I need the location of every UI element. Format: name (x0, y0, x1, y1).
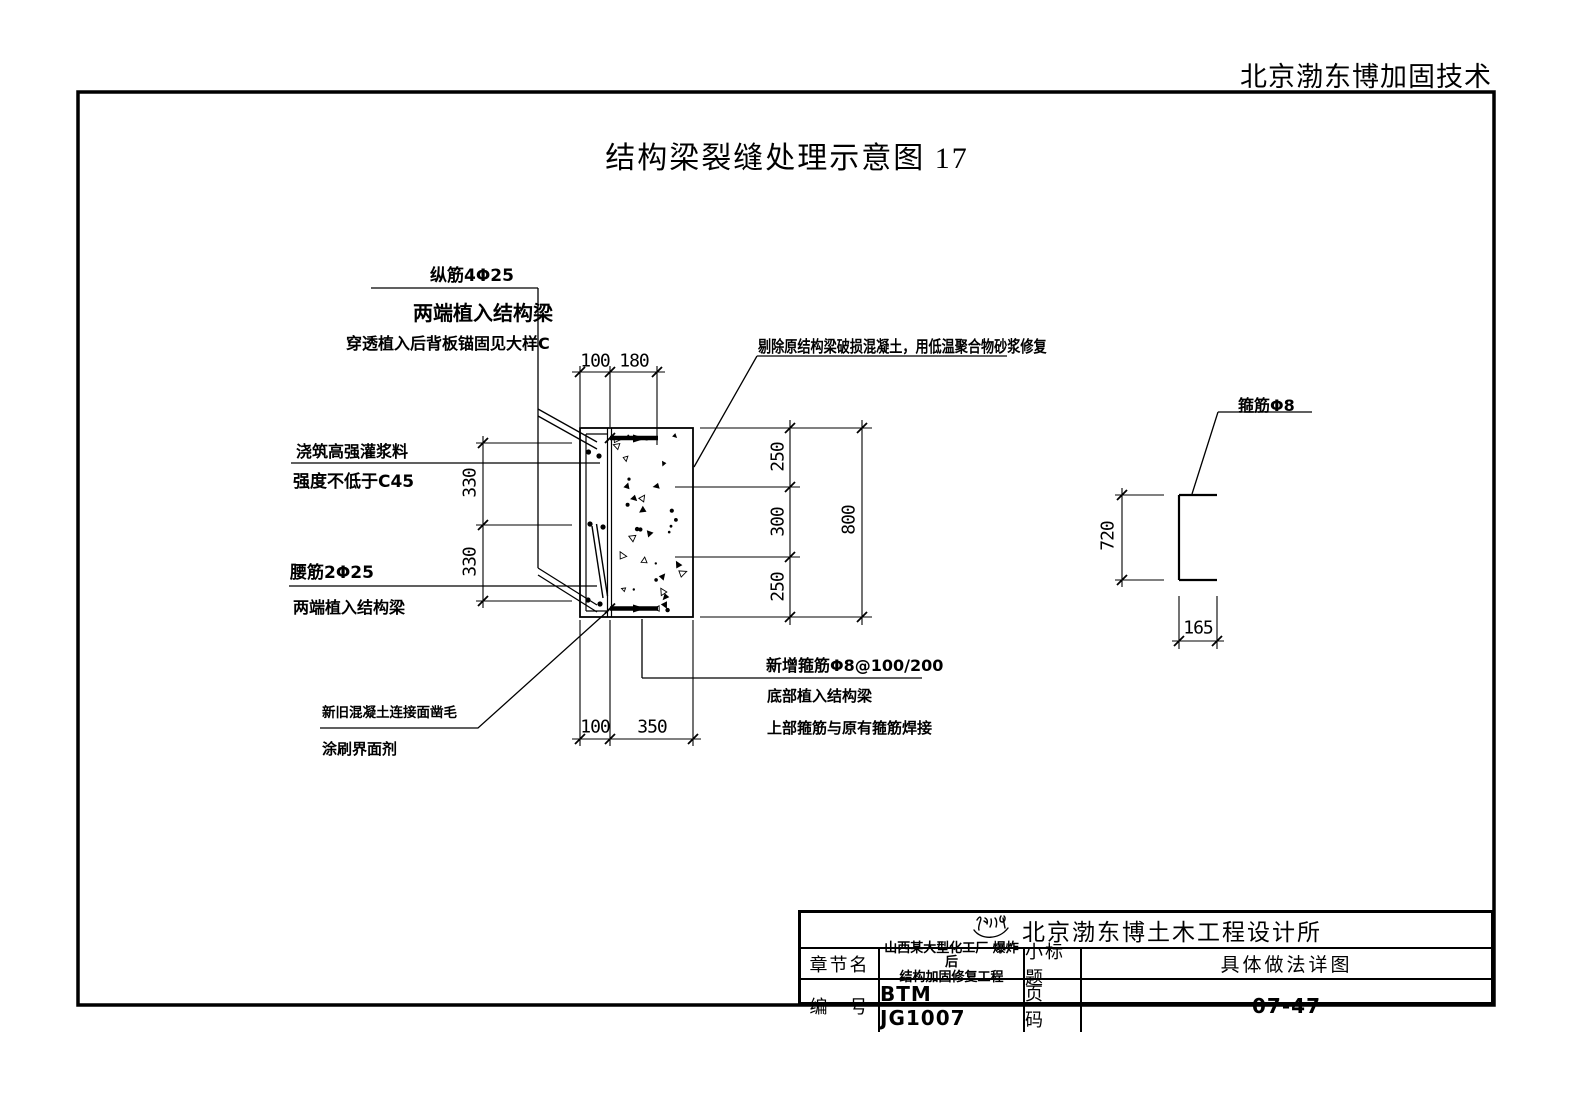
dim-detail-165: 165 (1183, 618, 1213, 639)
dim-detail-720: 720 (1098, 521, 1119, 551)
title-block: 北京渤东博土木工程设计所 章节名 山西某大型化工厂 爆炸后 结构加固修复工程 小… (798, 910, 1494, 1005)
title-block-grid: 章节名 山西某大型化工厂 爆炸后 结构加固修复工程 小标题 具体做法详图 编 号… (801, 949, 1491, 1032)
dim-right-800: 800 (839, 505, 860, 535)
sheet-border (78, 92, 1494, 1005)
annotation-stirrup-detail-label: 箍筋Φ8 (1238, 392, 1295, 416)
dim-bottom-350: 350 (637, 717, 667, 738)
annotation-longitudinal-rebar-note2: 穿透植入后背板锚固见大样C (346, 330, 550, 354)
dim-left-330a: 330 (460, 468, 481, 498)
stirrup-detail-shape (1179, 495, 1217, 580)
page-label: 页 码 (1023, 978, 1080, 1032)
dim-right-250a: 250 (768, 442, 789, 472)
annotation-longitudinal-rebar: 纵筋4Φ25 (430, 261, 514, 286)
header-company: 北京渤东博加固技术 (1240, 55, 1492, 94)
number-value: BTM JG1007 (878, 978, 1023, 1032)
annotation-waist-rebar: 腰筋2Φ25 (290, 558, 374, 583)
rebar-bars (610, 435, 658, 613)
dim-top-180: 180 (619, 351, 649, 372)
annotation-grout-line1: 浇筑高强灌浆料 (296, 438, 408, 462)
subtitle-label: 小标题 (1023, 949, 1080, 978)
drawing-sheet: 北京渤东博加固技术 结构梁裂缝处理示意图 17 纵筋4Φ25 两端植入结构梁 穿… (0, 0, 1571, 1098)
chapter-label: 章节名 (801, 949, 878, 978)
annotation-new-stirrup: 新增箍筋Φ8@100/200 (766, 652, 943, 676)
dim-right-300: 300 (768, 507, 789, 537)
rebar-dots (585, 449, 605, 606)
dim-bottom-100: 100 (580, 717, 610, 738)
annotation-longitudinal-rebar-note1: 两端植入结构梁 (413, 297, 553, 326)
annotation-waist-rebar-note: 两端植入结构梁 (293, 594, 405, 618)
dim-left-330b: 330 (460, 547, 481, 577)
project-name-line1: 山西某大型化工厂 爆炸后 (880, 942, 1023, 970)
page-value: 07-47 (1080, 978, 1491, 1032)
annotation-interface-agent: 涂刷界面剂 (322, 738, 397, 759)
number-label: 编 号 (801, 978, 878, 1032)
annotation-repair-mortar: 剔除原结构梁破损混凝土，用低温聚合物砂浆修复 (758, 333, 1047, 357)
concrete-speckles (613, 433, 686, 612)
annotation-new-stirrup-note2: 上部箍筋与原有箍筋焊接 (767, 717, 932, 738)
page-title: 结构梁裂缝处理示意图 17 (605, 133, 969, 177)
annotation-roughen-surface: 新旧混凝土连接面凿毛 (322, 701, 457, 721)
annotation-grout-line2: 强度不低于C45 (293, 467, 414, 492)
dim-top-100: 100 (580, 351, 610, 372)
dim-right-250b: 250 (768, 572, 789, 602)
annotation-new-stirrup-note1: 底部植入结构梁 (767, 685, 872, 706)
chapter-value: 山西某大型化工厂 爆炸后 结构加固修复工程 (878, 949, 1023, 978)
subtitle-value: 具体做法详图 (1080, 949, 1491, 978)
